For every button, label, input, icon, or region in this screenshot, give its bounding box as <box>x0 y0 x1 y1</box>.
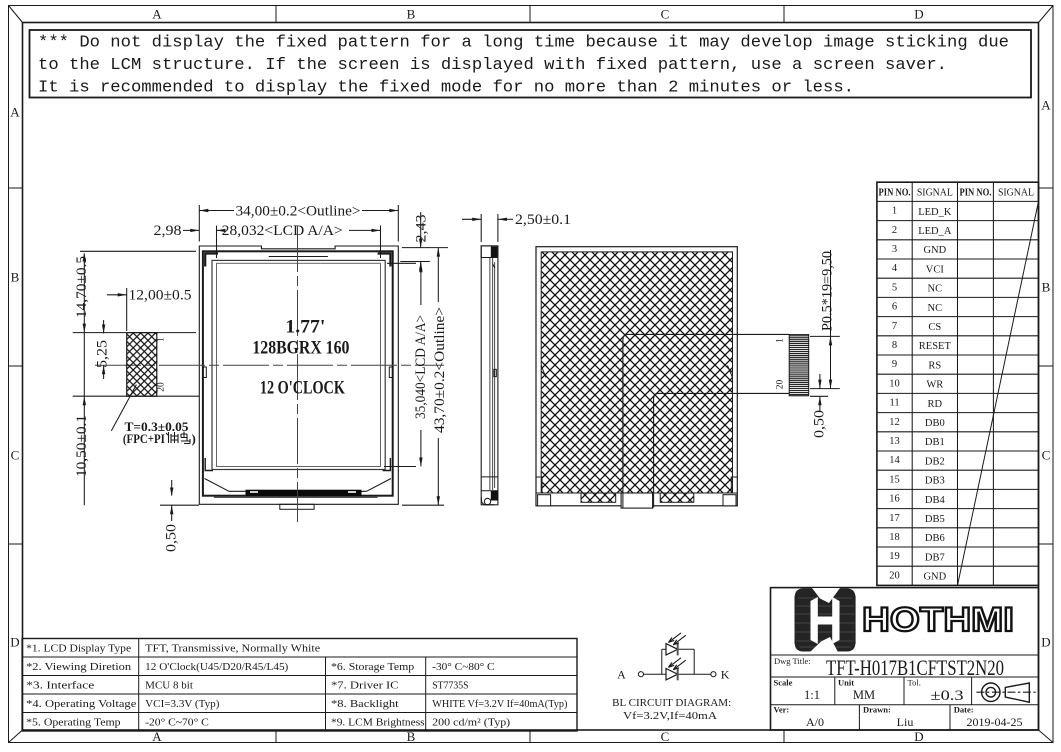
svg-text:A: A <box>617 668 626 682</box>
svg-text:C: C <box>11 448 20 463</box>
svg-text:CS: CS <box>928 322 941 333</box>
svg-text:Ver:: Ver: <box>774 705 790 715</box>
svg-text:D: D <box>914 729 923 744</box>
svg-text:MM: MM <box>853 688 875 702</box>
svg-text:B: B <box>1042 280 1051 295</box>
svg-text:RS: RS <box>928 360 941 371</box>
svg-text:NC: NC <box>928 284 943 295</box>
svg-text:(FPC+PI: (FPC+PI <box>123 431 165 446</box>
svg-text:LED_A: LED_A <box>918 226 952 237</box>
svg-text:B: B <box>407 7 416 22</box>
svg-text:4: 4 <box>892 263 898 274</box>
svg-text:2,43: 2,43 <box>413 215 429 243</box>
svg-text:12 O'CLOCK: 12 O'CLOCK <box>260 378 345 399</box>
svg-text:RD: RD <box>928 399 943 410</box>
svg-text:±0.3: ±0.3 <box>931 688 964 704</box>
svg-text:DB5: DB5 <box>925 514 945 525</box>
svg-text:K: K <box>721 668 730 682</box>
svg-text:GND: GND <box>923 572 946 583</box>
svg-text:*9. LCM Brightness: *9. LCM Brightness <box>331 718 425 729</box>
svg-text:*5. Operating Temp: *5. Operating Temp <box>26 718 121 729</box>
svg-text:C: C <box>661 7 670 22</box>
svg-text:28,032<LCD A/A>: 28,032<LCD A/A> <box>222 223 343 239</box>
svg-text:Unit: Unit <box>838 678 854 688</box>
svg-text:A/0: A/0 <box>806 715 824 729</box>
svg-text:TFT-H017B1CFTST2N20: TFT-H017B1CFTST2N20 <box>826 655 1004 680</box>
svg-text:10,50±0.1: 10,50±0.1 <box>74 415 90 477</box>
svg-text:*7. Driver IC: *7. Driver IC <box>331 681 399 692</box>
svg-text:1: 1 <box>892 206 897 217</box>
svg-text:DB0: DB0 <box>925 418 945 429</box>
svg-text:1.77': 1.77' <box>285 317 325 338</box>
svg-text:20: 20 <box>889 570 900 581</box>
svg-text:-20° C~70° C: -20° C~70° C <box>145 718 209 729</box>
svg-text:DB3: DB3 <box>925 476 945 487</box>
svg-text:7: 7 <box>892 321 897 332</box>
svg-text:12 O'Clock(U45/D20/R45/L45): 12 O'Clock(U45/D20/R45/L45) <box>145 662 289 673</box>
svg-text:2,98: 2,98 <box>154 223 182 239</box>
svg-text:Dwg Title:: Dwg Title: <box>774 656 811 666</box>
svg-text:17: 17 <box>889 513 900 524</box>
svg-text:A: A <box>10 105 20 120</box>
svg-text:9: 9 <box>892 359 897 370</box>
svg-text:*3. Interface: *3. Interface <box>26 681 95 692</box>
svg-text:15: 15 <box>889 474 900 485</box>
svg-text:*8. Backlight: *8. Backlight <box>331 699 399 710</box>
svg-text:HOTHMI: HOTHMI <box>862 601 1014 639</box>
svg-text:DB6: DB6 <box>925 533 945 544</box>
svg-text:14,70±0.5: 14,70±0.5 <box>74 256 90 318</box>
svg-text:*4. Operating Voltage: *4. Operating Voltage <box>26 699 137 710</box>
svg-text:VCI=3.3V (Typ): VCI=3.3V (Typ) <box>145 699 220 710</box>
svg-text:GND: GND <box>923 245 946 256</box>
svg-text:10: 10 <box>889 378 900 389</box>
svg-text:128BGRX 160: 128BGRX 160 <box>252 338 349 359</box>
svg-text:20: 20 <box>157 382 167 392</box>
svg-text:*1. LCD Display Type: *1. LCD Display Type <box>26 644 131 655</box>
svg-text:A: A <box>152 7 162 22</box>
svg-text:WR: WR <box>926 380 943 391</box>
svg-text:0,50: 0,50 <box>164 524 180 552</box>
svg-text:P0.5*19=9,50: P0.5*19=9,50 <box>820 251 836 331</box>
svg-text:1: 1 <box>157 337 167 342</box>
svg-text:200 cd/m² (Typ): 200 cd/m² (Typ) <box>432 718 511 729</box>
svg-text:Drawn:: Drawn: <box>863 705 891 715</box>
svg-text:5,25: 5,25 <box>95 340 111 368</box>
svg-text:8: 8 <box>892 340 897 351</box>
svg-text:C: C <box>661 729 670 744</box>
svg-text:DB1: DB1 <box>925 437 945 448</box>
svg-text:34,00±0.2<Outline>: 34,00±0.2<Outline> <box>236 203 361 219</box>
svg-text:43,70±0.2<Outline>: 43,70±0.2<Outline> <box>432 307 448 433</box>
svg-text:*2. Viewing Diretion: *2. Viewing Diretion <box>26 662 132 673</box>
svg-text:3: 3 <box>892 244 897 255</box>
svg-text:2019-04-25: 2019-04-25 <box>967 715 1023 729</box>
svg-text:0,50: 0,50 <box>812 410 828 438</box>
svg-text:14: 14 <box>889 455 900 466</box>
svg-text:Date:: Date: <box>954 705 974 715</box>
svg-text:13: 13 <box>889 436 900 447</box>
svg-text:DB4: DB4 <box>925 495 946 506</box>
svg-text:C: C <box>1042 448 1051 463</box>
svg-text:35,040<LCD A/A>: 35,040<LCD A/A> <box>413 315 429 419</box>
svg-text:2: 2 <box>892 225 897 236</box>
svg-text:Liu: Liu <box>897 715 914 729</box>
svg-text:BL CIRCUIT DIAGRAM:: BL CIRCUIT DIAGRAM: <box>612 697 731 709</box>
svg-text:-30° C~80° C: -30° C~80° C <box>432 662 494 673</box>
svg-text:Scale: Scale <box>774 678 793 688</box>
svg-text:18: 18 <box>889 532 900 543</box>
svg-text:D: D <box>914 7 923 22</box>
svg-text:6: 6 <box>892 302 897 313</box>
svg-text:1:1: 1:1 <box>804 688 820 702</box>
svg-text:to the LCM structure. If the s: to the LCM structure. If the screen is d… <box>38 56 947 75</box>
svg-text:): ) <box>192 431 196 446</box>
svg-text:B: B <box>11 270 20 285</box>
svg-text:D: D <box>1041 635 1050 650</box>
svg-text:*6. Storage Temp: *6. Storage Temp <box>331 662 414 673</box>
svg-text:DB7: DB7 <box>925 552 945 563</box>
svg-text:VCI: VCI <box>926 264 945 275</box>
svg-text:ST7735S: ST7735S <box>432 681 469 692</box>
svg-text:11: 11 <box>889 398 899 409</box>
svg-text:5: 5 <box>892 282 897 293</box>
svg-text:A: A <box>1041 98 1051 113</box>
svg-text:20: 20 <box>776 380 786 390</box>
svg-text:19: 19 <box>889 551 900 562</box>
svg-text:MCU 8 bit: MCU 8 bit <box>145 681 193 692</box>
svg-text:PIN NO.: PIN NO. <box>959 187 991 198</box>
svg-text:PIN NO.: PIN NO. <box>879 187 911 198</box>
svg-text:12: 12 <box>889 417 900 428</box>
svg-text:Vf=3.2V,If=40mA: Vf=3.2V,If=40mA <box>623 710 717 722</box>
svg-text:Tol.: Tol. <box>908 678 921 688</box>
svg-text:SIGNAL: SIGNAL <box>998 187 1034 198</box>
svg-text:*** Do not display the fixed p: *** Do not display the fixed pattern for… <box>38 34 1009 53</box>
svg-text:12,00±0.5: 12,00±0.5 <box>129 288 192 304</box>
svg-text:1: 1 <box>776 338 786 343</box>
svg-text:D: D <box>10 635 19 650</box>
svg-text:SIGNAL: SIGNAL <box>917 187 953 198</box>
svg-text:2,50±0.1: 2,50±0.1 <box>515 212 571 228</box>
svg-text:NC: NC <box>928 303 943 314</box>
svg-text:DB2: DB2 <box>925 456 945 467</box>
svg-text:16: 16 <box>889 494 900 505</box>
svg-text:RESET: RESET <box>919 341 952 352</box>
svg-text:WHITE Vf=3.2V If=40mA(Typ): WHITE Vf=3.2V If=40mA(Typ) <box>432 699 568 710</box>
svg-text:TFT, Transmissive, Normally Wh: TFT, Transmissive, Normally White <box>145 644 320 655</box>
svg-text:It is recommended to display t: It is recommended to display the fixed m… <box>38 79 854 98</box>
svg-text:LED_K: LED_K <box>918 207 952 218</box>
